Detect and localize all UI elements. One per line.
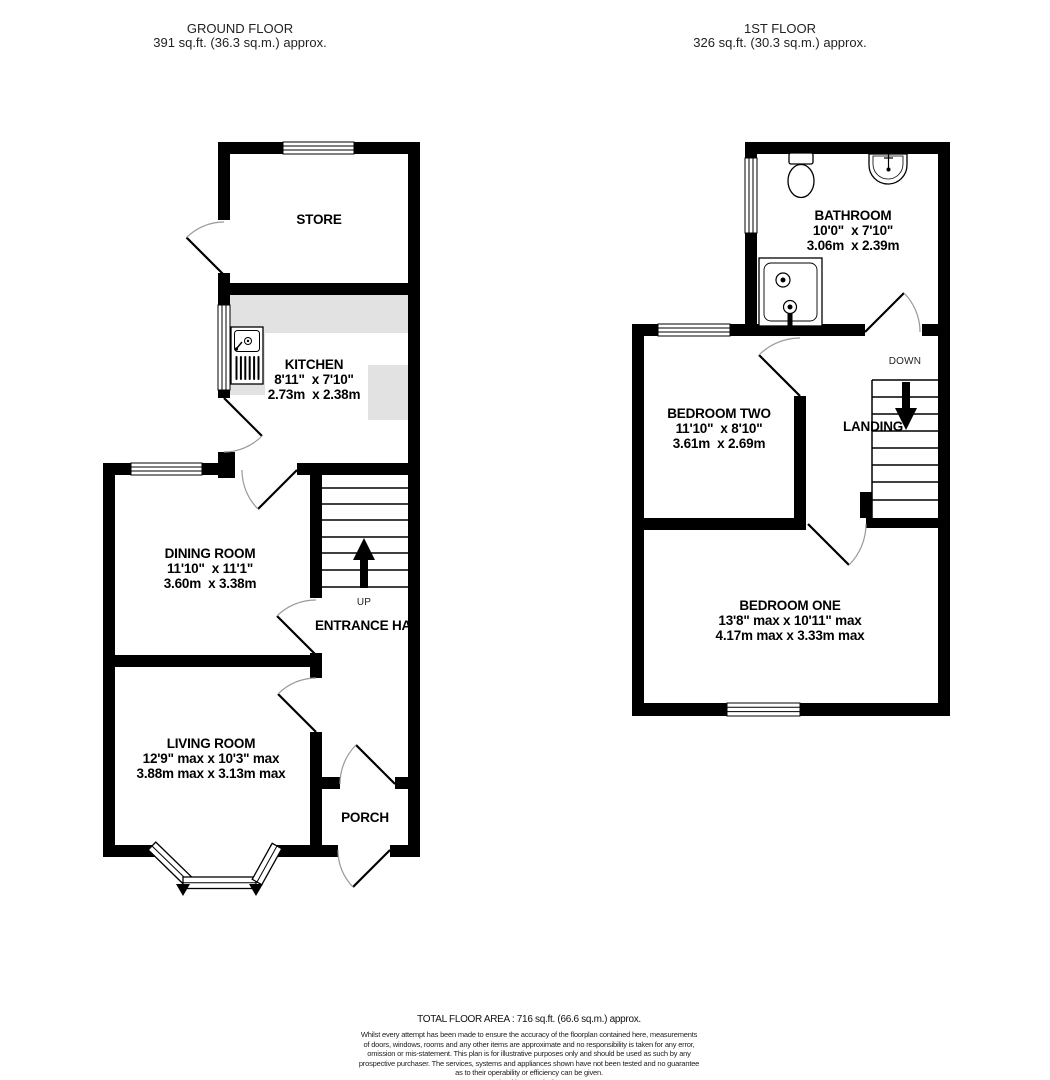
- kitchen-dining-door: [242, 470, 297, 509]
- entrance-hall-label: ENTRANCE HALL: [315, 618, 409, 633]
- shower-tray: [759, 258, 822, 326]
- bedroom-two-window: [658, 324, 730, 336]
- porch-inner-door: [340, 745, 395, 784]
- up-arrow-icon: [353, 538, 375, 588]
- floorplan-drawing: [0, 0, 1050, 1080]
- bedroom-one-window: [727, 703, 800, 716]
- kitchen-window: [218, 305, 230, 390]
- dining-room-label: DINING ROOM11'10" x 11'1"3.60m x 3.38m: [164, 546, 257, 591]
- bathroom-window: [745, 158, 757, 233]
- up-label: UP: [357, 597, 371, 608]
- living-room-label: LIVING ROOM12'9" max x 10'3" max3.88m ma…: [137, 736, 286, 781]
- living-room-door: [278, 678, 316, 732]
- bathroom-label: BATHROOM10'0" x 7'10"3.06m x 2.39m: [807, 208, 900, 253]
- first-floor-area: 326 sq.ft. (30.3 sq.m.) approx.: [693, 35, 866, 50]
- down-label: DOWN: [889, 356, 921, 367]
- landing-label: LANDING: [843, 419, 903, 434]
- store-window: [283, 142, 354, 154]
- kitchen-side-door: [224, 398, 262, 452]
- store-label: STORE: [296, 212, 341, 227]
- ground-floor-area: 391 sq.ft. (36.3 sq.m.) approx.: [153, 35, 326, 50]
- bathroom-door: [865, 293, 920, 332]
- disclaimer-text: Whilst every attempt has been made to en…: [359, 1030, 699, 1080]
- porch-label: PORCH: [341, 810, 389, 825]
- front-door: [338, 850, 390, 887]
- dining-room-door: [277, 600, 316, 655]
- ground-floor-title: GROUND FLOOR: [187, 21, 293, 36]
- ground-floor-header: GROUND FLOOR391 sq.ft. (36.3 sq.m.) appr…: [153, 22, 326, 50]
- staircase-down: [872, 380, 938, 518]
- first-floor-header: 1ST FLOOR326 sq.ft. (30.3 sq.m.) approx.: [693, 22, 866, 50]
- bedroom-two-label: BEDROOM TWO11'10" x 8'10"3.61m x 2.69m: [667, 406, 771, 451]
- first-floor-title: 1ST FLOOR: [744, 21, 816, 36]
- toilet: [788, 153, 814, 198]
- bedroom-one-door: [808, 524, 866, 565]
- bedroom-two-door: [759, 338, 800, 396]
- wash-basin: [869, 154, 907, 184]
- kitchen-sink: [231, 327, 263, 384]
- kitchen-label: KITCHEN8'11" x 7'10"2.73m x 2.38m: [268, 357, 361, 402]
- floorplan-page: GROUND FLOOR391 sq.ft. (36.3 sq.m.) appr…: [0, 0, 1050, 1080]
- bay-window: [148, 842, 282, 896]
- dining-window: [131, 463, 202, 475]
- store-door: [187, 222, 225, 275]
- staircase-up: [322, 488, 408, 588]
- ground-floor-plan: [103, 142, 420, 896]
- total-floor-area: TOTAL FLOOR AREA : 716 sq.ft. (66.6 sq.m…: [417, 1014, 641, 1025]
- bedroom-one-label: BEDROOM ONE13'8" max x 10'11" max4.17m m…: [716, 598, 865, 643]
